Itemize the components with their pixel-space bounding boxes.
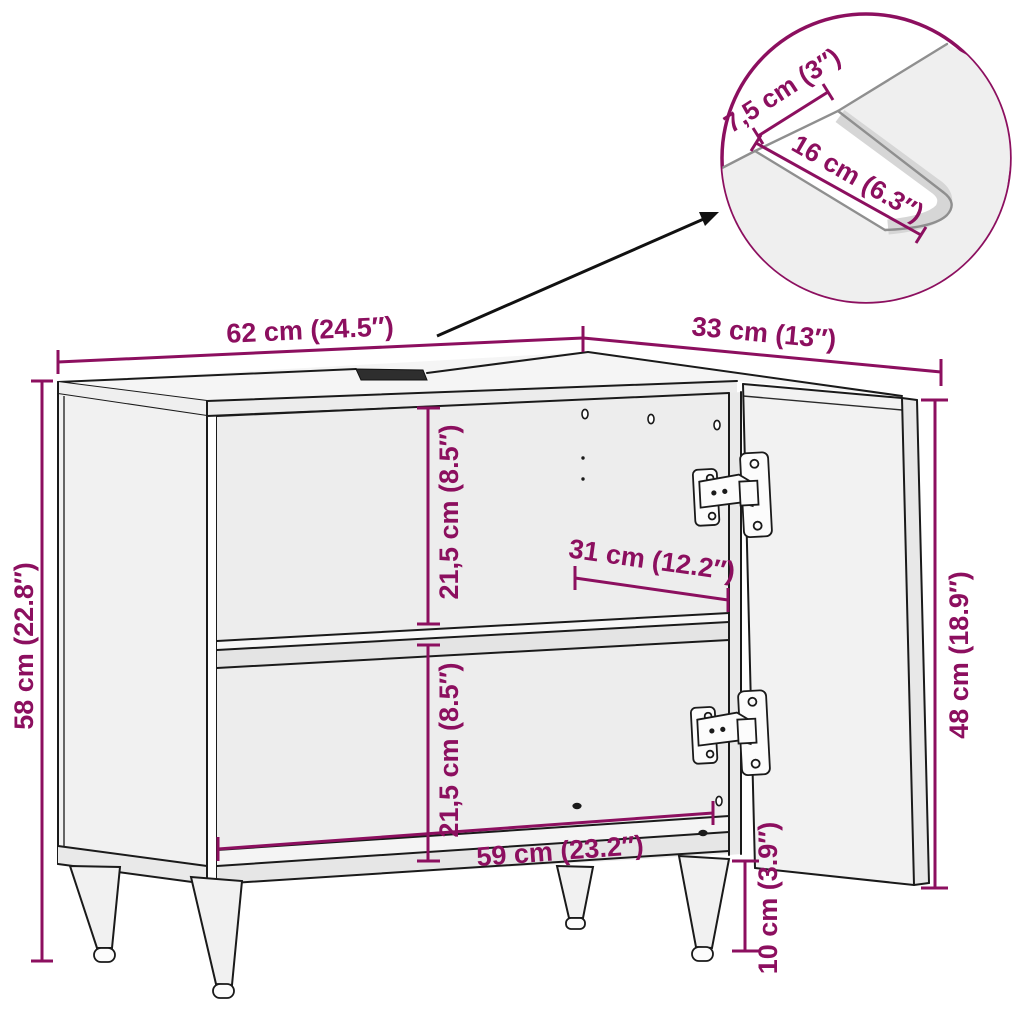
diagram-canvas: 62 cm (24.5″) 33 cm (13″) 58 cm (22.8″) … xyxy=(0,0,1024,1024)
dim-depth-label: 33 cm (13″) xyxy=(690,311,837,355)
dim-height: 58 cm (22.8″) xyxy=(9,381,53,961)
dim-upper-compartment-label: 21,5 cm (8.5″) xyxy=(434,424,464,599)
product-dimension-diagram: 62 cm (24.5″) 33 cm (13″) 58 cm (22.8″) … xyxy=(0,0,1024,1024)
dim-door-height: 48 cm (18.9″) xyxy=(921,400,974,888)
dim-height-label: 58 cm (22.8″) xyxy=(9,562,39,730)
leg-front-right xyxy=(679,856,729,961)
dim-lower-compartment-label: 21,5 cm (8.5″) xyxy=(434,662,464,837)
left-door xyxy=(58,382,207,884)
leg-back-right xyxy=(557,866,593,929)
dim-width-label: 62 cm (24.5″) xyxy=(226,311,395,349)
dim-leg-height-label: 10 cm (3.9″) xyxy=(753,822,783,975)
dim-door-height-label: 48 cm (18.9″) xyxy=(944,571,974,739)
leg-back-left xyxy=(70,866,120,962)
right-door xyxy=(743,384,929,885)
cabinet-interior xyxy=(217,393,729,884)
detail-circle: 7,5 cm (3″) 16 cm (6.3″) xyxy=(700,14,1015,310)
right-side-panel-edge xyxy=(729,392,741,855)
leg-front-left xyxy=(191,877,242,998)
sink-pipe-cutout xyxy=(356,369,427,380)
cabinet-drawing xyxy=(58,352,929,998)
detail-arrow xyxy=(437,212,719,336)
